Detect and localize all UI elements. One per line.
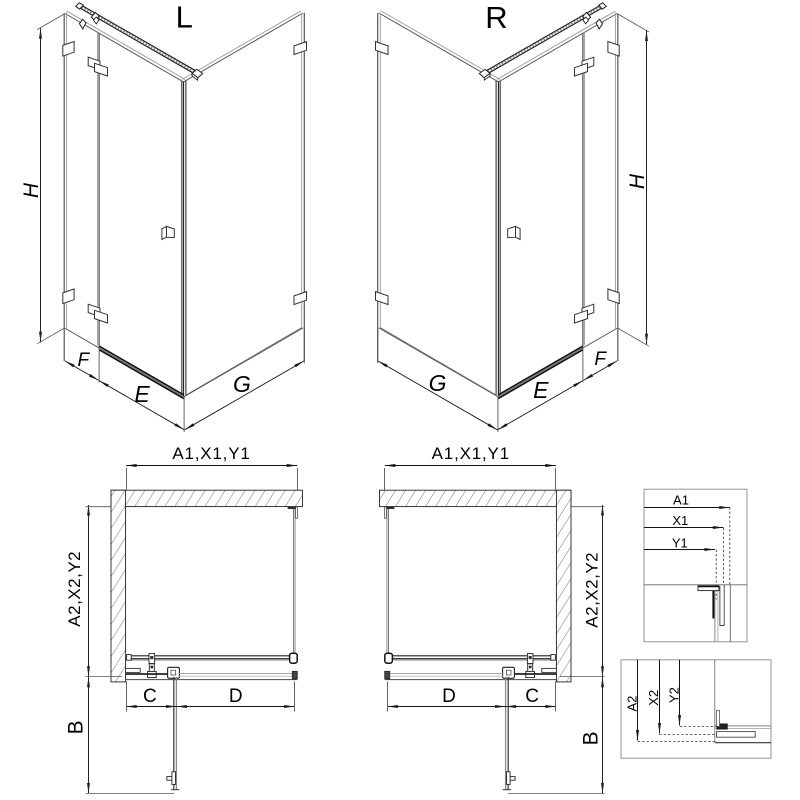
svg-text:F: F: [77, 350, 90, 371]
svg-text:B: B: [64, 720, 87, 734]
svg-text:Y1: Y1: [672, 536, 688, 551]
svg-text:F: F: [594, 349, 607, 370]
svg-text:A1,X1,Y1: A1,X1,Y1: [172, 444, 250, 463]
svg-text:A2: A2: [625, 696, 640, 712]
svg-text:X2: X2: [646, 690, 661, 706]
svg-text:A1: A1: [673, 492, 689, 507]
svg-text:D: D: [442, 686, 456, 707]
svg-text:H: H: [626, 173, 649, 189]
svg-text:R: R: [485, 0, 507, 35]
svg-text:D: D: [229, 686, 243, 707]
svg-text:H: H: [20, 182, 43, 198]
svg-text:X1: X1: [672, 513, 688, 528]
svg-text:E: E: [134, 381, 150, 407]
svg-text:E: E: [533, 377, 549, 403]
svg-text:B: B: [579, 731, 602, 745]
svg-text:C: C: [143, 686, 157, 707]
svg-text:C: C: [525, 686, 539, 707]
svg-text:G: G: [233, 371, 251, 397]
svg-text:Y2: Y2: [667, 687, 682, 703]
svg-text:L: L: [176, 0, 193, 35]
svg-text:A2,X2,Y2: A2,X2,Y2: [65, 551, 84, 627]
svg-text:A2,X2,Y2: A2,X2,Y2: [582, 552, 601, 628]
svg-text:G: G: [429, 370, 447, 396]
svg-text:A1,X1,Y1: A1,X1,Y1: [432, 444, 510, 463]
